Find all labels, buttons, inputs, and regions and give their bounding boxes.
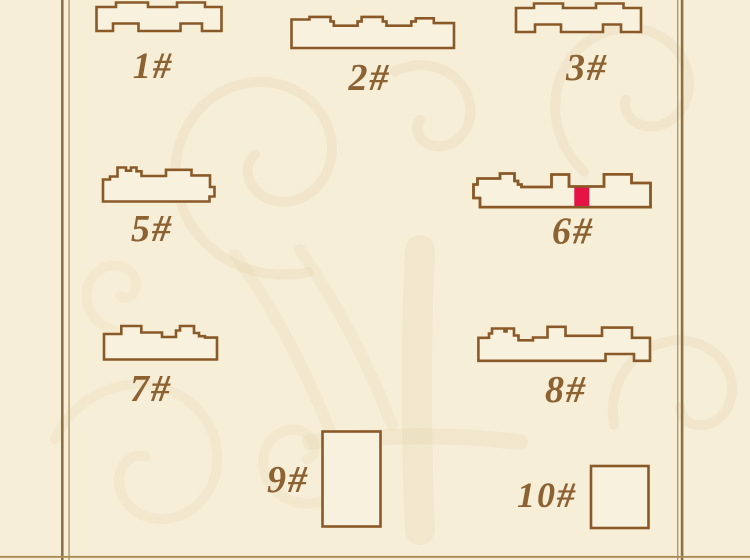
svg-text:2#: 2# [348,57,391,99]
svg-text:9#: 9# [267,459,309,501]
svg-text:6#: 6# [552,211,594,253]
svg-text:5#: 5# [131,208,173,250]
svg-text:10#: 10# [517,475,577,515]
svg-text:3#: 3# [565,47,608,89]
svg-text:1#: 1# [133,45,174,86]
svg-text:7#: 7# [130,368,172,410]
svg-text:8#: 8# [545,369,587,411]
